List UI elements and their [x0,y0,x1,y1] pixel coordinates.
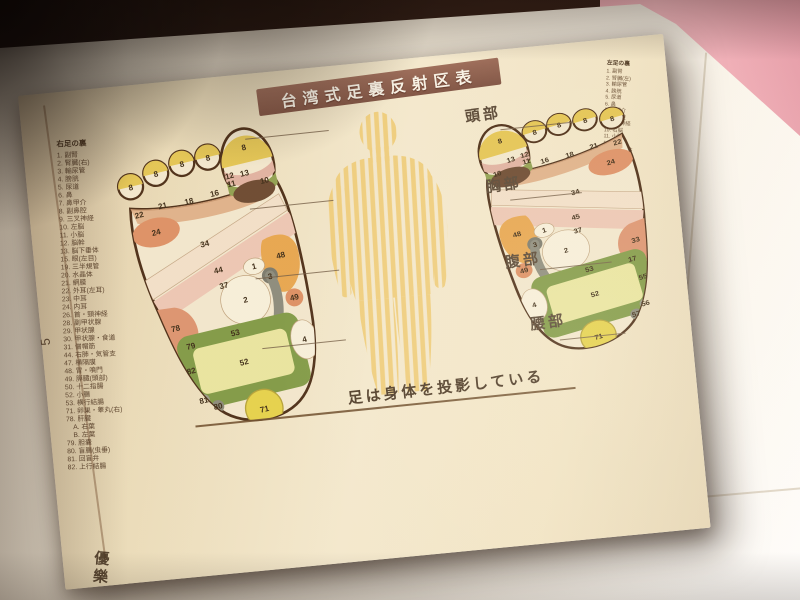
reflexology-chart-page: 5 優樂 台湾式足裏反射区表 右足の裏 1. 副腎2. 腎臓(右)3. 輸尿管4… [18,34,711,590]
legend-header: 左足の裏 [607,57,665,69]
page-number: 5 [38,338,54,347]
publisher-stamp: 優樂 [88,550,112,588]
zone-number-label: 56 [640,298,651,308]
body-figure [297,100,483,410]
